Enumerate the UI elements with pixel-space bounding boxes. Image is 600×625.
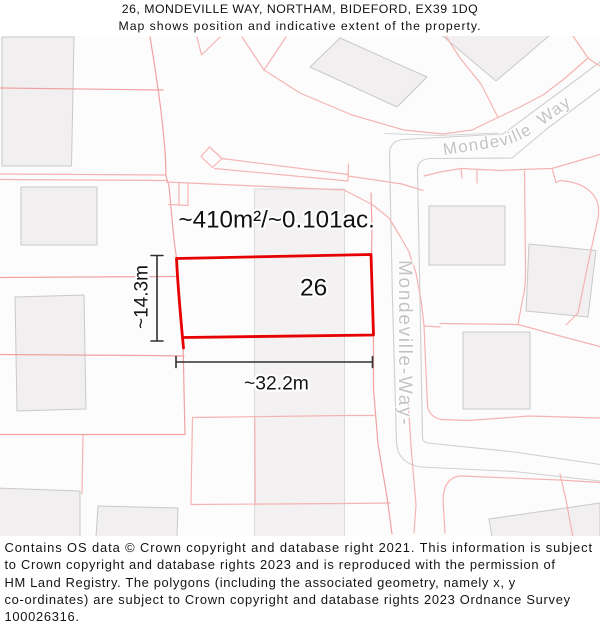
svg-text:~410m²/~0.101ac.: ~410m²/~0.101ac.: [179, 207, 375, 234]
svg-text:26: 26: [300, 275, 327, 302]
svg-text:~14.3m: ~14.3m: [132, 265, 153, 329]
svg-text:~32.2m: ~32.2m: [244, 373, 309, 394]
svg-text:Mondeville-Way-: Mondeville-Way-: [394, 260, 415, 426]
